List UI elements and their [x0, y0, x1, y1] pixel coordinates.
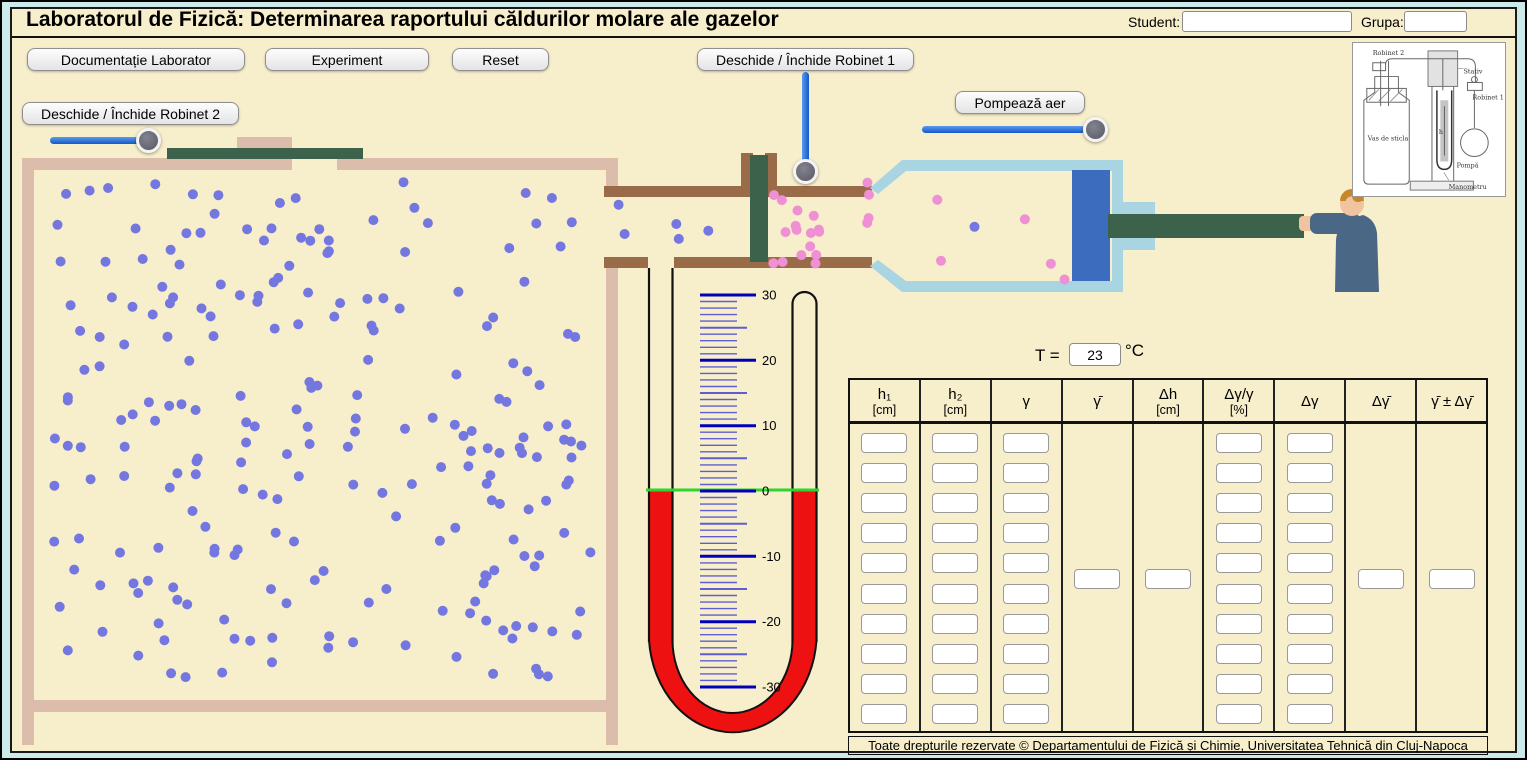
table-cell-input[interactable]	[932, 463, 978, 483]
table-header-cell: γ	[992, 380, 1063, 421]
table-cell-input[interactable]	[861, 644, 907, 664]
table-cell-input[interactable]	[932, 704, 978, 724]
table-header-cell: Δγ̄	[1346, 380, 1417, 421]
table-cell-input[interactable]	[932, 493, 978, 513]
table-cell-input[interactable]	[1287, 493, 1333, 513]
table-column-cells	[1275, 424, 1346, 731]
apparatus-label-stativ: Stativ	[1464, 68, 1483, 76]
robinet1-button[interactable]: Deschide / Închide Robinet 1	[697, 48, 914, 71]
table-cell-input[interactable]	[861, 493, 907, 513]
table-column-cells	[1417, 424, 1486, 731]
table-cell-input[interactable]	[1216, 433, 1262, 453]
robinet2-slider-handle[interactable]	[136, 128, 161, 153]
table-cell-input[interactable]	[932, 553, 978, 573]
table-cell-input[interactable]	[1358, 569, 1404, 589]
table-cell-input[interactable]	[861, 584, 907, 604]
column-label: h₂	[948, 386, 962, 403]
column-label: Δh	[1159, 386, 1177, 403]
table-column-cells	[850, 424, 921, 731]
column-unit: [cm]	[873, 403, 897, 417]
temperature-input[interactable]	[1069, 343, 1121, 366]
table-cell-input[interactable]	[1003, 463, 1049, 483]
table-column-cells	[992, 424, 1063, 731]
table-cell-input[interactable]	[861, 433, 907, 453]
table-cell-input[interactable]	[1003, 433, 1049, 453]
table-column-cells	[1346, 424, 1417, 731]
table-cell-input[interactable]	[1003, 704, 1049, 724]
grupa-label: Grupa:	[1361, 14, 1404, 30]
experiment-button[interactable]: Experiment	[265, 48, 429, 71]
table-cell-input[interactable]	[932, 523, 978, 543]
table-column-cells	[1204, 424, 1275, 731]
table-cell-input[interactable]	[1145, 569, 1191, 589]
table-cell-input[interactable]	[861, 523, 907, 543]
apparatus-label-robinet1: Robinet 1	[1472, 93, 1503, 101]
apparatus-sketch: Robinet 2 Stativ Robinet 1 Vas de sticla…	[1353, 43, 1505, 196]
pump-button[interactable]: Pompează aer	[955, 91, 1085, 114]
column-label: γ	[1022, 393, 1030, 410]
table-cell-input[interactable]	[1216, 553, 1262, 573]
apparatus-label-pompa: Pompă	[1457, 161, 1479, 169]
table-column-cells	[921, 424, 992, 731]
table-cell-input[interactable]	[1287, 584, 1333, 604]
table-cell-input[interactable]	[1216, 463, 1262, 483]
robinet1-slider-handle[interactable]	[793, 159, 818, 184]
apparatus-label-vas: Vas de sticla	[1367, 135, 1409, 143]
table-cell-input[interactable]	[1287, 523, 1333, 543]
table-cell-input[interactable]	[861, 614, 907, 634]
column-label: γ̄	[1093, 393, 1101, 410]
page-title: Laboratorul de Fizică: Determinarea rapo…	[26, 8, 779, 32]
table-cell-input[interactable]	[1429, 569, 1475, 589]
table-cell-input[interactable]	[1003, 614, 1049, 634]
table-cell-input[interactable]	[1216, 584, 1262, 604]
copyright-footer: Toate drepturile rezervate © Departament…	[848, 736, 1488, 755]
table-cell-input[interactable]	[1216, 644, 1262, 664]
table-cell-input[interactable]	[1003, 493, 1049, 513]
column-label: Δγ/γ	[1224, 386, 1253, 403]
table-cell-input[interactable]	[1003, 674, 1049, 694]
measurements-table: h₁[cm]h₂[cm]γγ̄Δh[cm]Δγ/γ[%]ΔγΔγ̄γ̄ ± Δγ…	[848, 378, 1488, 733]
table-cell-input[interactable]	[1287, 644, 1333, 664]
table-cell-input[interactable]	[932, 433, 978, 453]
table-header-cell: Δh[cm]	[1134, 380, 1205, 421]
table-cell-input[interactable]	[932, 644, 978, 664]
robinet2-slider-track[interactable]	[50, 137, 140, 144]
table-cell-input[interactable]	[1003, 584, 1049, 604]
table-cell-input[interactable]	[1216, 614, 1262, 634]
table-cell-input[interactable]	[1216, 674, 1262, 694]
student-label: Student:	[1128, 14, 1180, 30]
column-label: h₁	[878, 386, 891, 403]
table-cell-input[interactable]	[861, 674, 907, 694]
temperature-label: T =	[1035, 346, 1060, 366]
pump-slider-handle[interactable]	[1083, 117, 1108, 142]
table-cell-input[interactable]	[1287, 674, 1333, 694]
table-cell-input[interactable]	[861, 704, 907, 724]
table-header-cell: γ̄	[1063, 380, 1134, 421]
table-cell-input[interactable]	[1216, 704, 1262, 724]
student-input[interactable]	[1182, 11, 1352, 32]
table-body-row	[850, 424, 1486, 731]
table-cell-input[interactable]	[1287, 704, 1333, 724]
apparatus-label-h: h	[1439, 128, 1443, 136]
table-cell-input[interactable]	[1003, 644, 1049, 664]
apparatus-figure: Robinet 2 Stativ Robinet 1 Vas de sticla…	[1352, 42, 1506, 197]
table-cell-input[interactable]	[932, 584, 978, 604]
table-cell-input[interactable]	[932, 674, 978, 694]
column-unit: [%]	[1230, 403, 1248, 417]
table-cell-input[interactable]	[1287, 463, 1333, 483]
pump-slider-track[interactable]	[922, 126, 1085, 133]
table-cell-input[interactable]	[1003, 553, 1049, 573]
table-header-cell: h₁[cm]	[850, 380, 921, 421]
apparatus-label-robinet2: Robinet 2	[1373, 49, 1404, 57]
robinet1-slider-track[interactable]	[802, 72, 809, 162]
column-unit: [cm]	[944, 403, 968, 417]
column-label: Δγ̄	[1372, 393, 1390, 410]
column-unit: [cm]	[1156, 403, 1180, 417]
table-cell-input[interactable]	[861, 553, 907, 573]
grupa-input[interactable]	[1404, 11, 1467, 32]
documentation-button[interactable]: Documentație Laborator	[27, 48, 245, 71]
table-header-row: h₁[cm]h₂[cm]γγ̄Δh[cm]Δγ/γ[%]ΔγΔγ̄γ̄ ± Δγ…	[850, 380, 1486, 424]
table-column-cells	[1063, 424, 1134, 731]
table-cell-input[interactable]	[1074, 569, 1120, 589]
table-header-cell: Δγ/γ[%]	[1204, 380, 1275, 421]
apparatus-label-manometru: Manometru	[1449, 183, 1487, 191]
table-cell-input[interactable]	[861, 463, 907, 483]
column-label: γ̄ ± Δγ̄	[1431, 393, 1472, 410]
table-cell-input[interactable]	[1003, 523, 1049, 543]
title-divider	[12, 36, 1515, 38]
table-cell-input[interactable]	[1287, 553, 1333, 573]
column-label: Δγ	[1301, 393, 1319, 410]
table-header-cell: γ̄ ± Δγ̄	[1417, 380, 1486, 421]
table-header-cell: Δγ	[1275, 380, 1346, 421]
table-cell-input[interactable]	[1216, 493, 1262, 513]
table-header-cell: h₂[cm]	[921, 380, 992, 421]
temperature-unit: °C	[1125, 341, 1144, 361]
table-cell-input[interactable]	[1287, 614, 1333, 634]
table-cell-input[interactable]	[1216, 523, 1262, 543]
reset-button[interactable]: Reset	[452, 48, 549, 71]
robinet2-button[interactable]: Deschide / Închide Robinet 2	[22, 102, 239, 125]
table-column-cells	[1134, 424, 1205, 731]
table-cell-input[interactable]	[1287, 433, 1333, 453]
table-cell-input[interactable]	[932, 614, 978, 634]
